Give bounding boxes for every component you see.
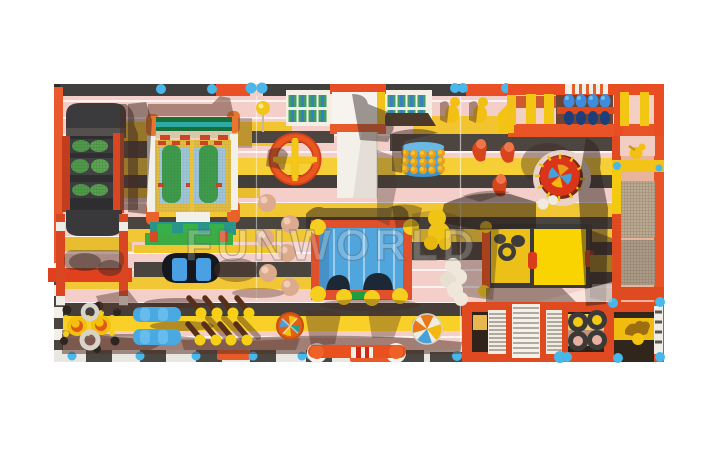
- svg-text:FUNWORLD: FUNWORLD: [185, 221, 478, 270]
